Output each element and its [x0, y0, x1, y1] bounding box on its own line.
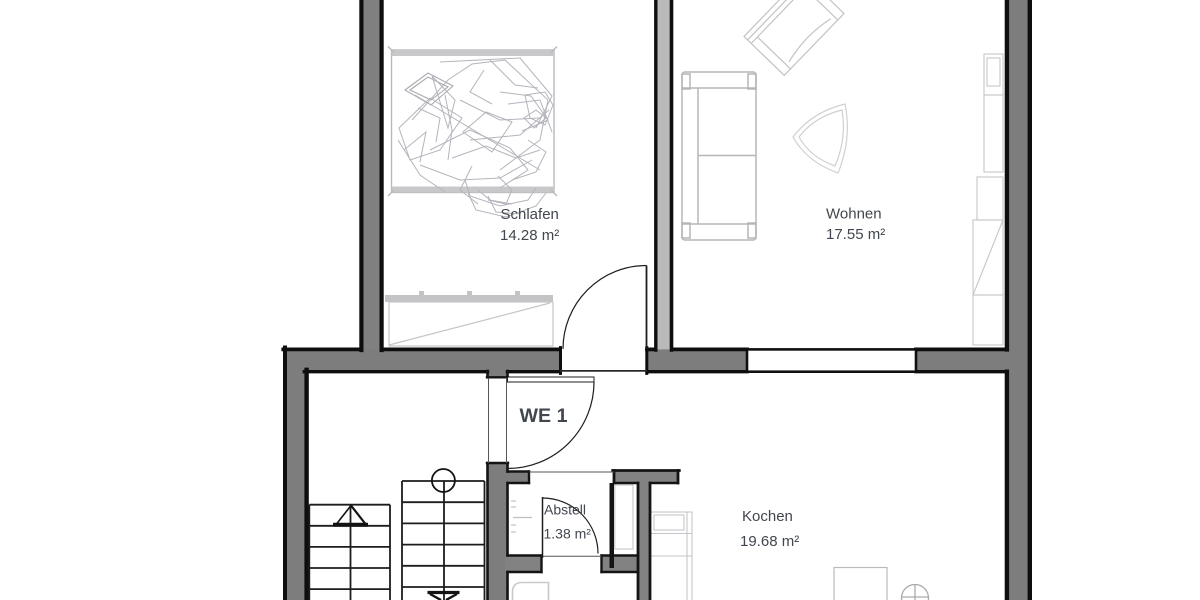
svg-text:Abstell: Abstell	[544, 502, 586, 518]
svg-text:Wohnen: Wohnen	[826, 205, 882, 222]
svg-text:Kochen: Kochen	[742, 508, 793, 525]
svg-text:17.55 m²: 17.55 m²	[826, 226, 885, 243]
svg-text:19.68 m²: 19.68 m²	[740, 533, 799, 550]
svg-text:14.28 m²: 14.28 m²	[500, 227, 559, 244]
svg-text:1.38 m²: 1.38 m²	[544, 526, 592, 542]
svg-text:WE 1: WE 1	[520, 405, 568, 427]
svg-text:Schlafen: Schlafen	[501, 206, 559, 223]
